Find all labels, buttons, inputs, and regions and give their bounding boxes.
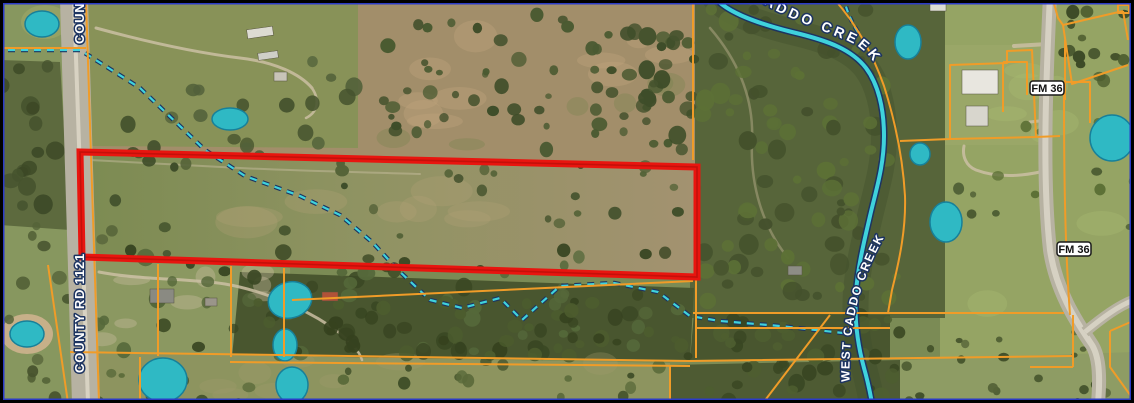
highway-badge-label: FM 36 [1031, 83, 1062, 95]
aerial-parcel-map[interactable]: COUNTY RD 1121 COUNTY RD 1121 CADDO CREE… [0, 0, 1134, 403]
aerial-imagery [0, 0, 1134, 403]
road-label-county-rd-1121-north: COUNTY RD 1121 [72, 0, 87, 44]
map-viewport[interactable]: COUNTY RD 1121 COUNTY RD 1121 CADDO CREE… [0, 0, 1134, 403]
highway-badge-fm36-north: FM 36 [1030, 81, 1064, 95]
road-label-county-rd-1121-south: COUNTY RD 1121 [72, 253, 87, 373]
highway-badge-label: FM 36 [1058, 244, 1089, 256]
highway-badge-fm36-south: FM 36 [1057, 242, 1091, 256]
